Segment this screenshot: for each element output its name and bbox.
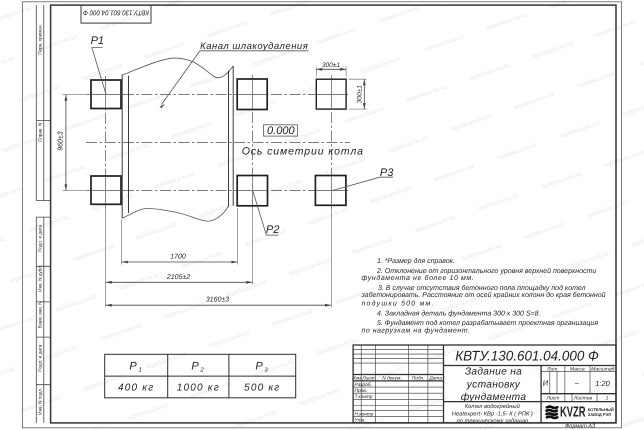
svg-text:Разраб.: Разраб. [355,382,372,388]
svg-text:1000 кг: 1000 кг [177,382,220,393]
svg-text:0.000: 0.000 [267,125,295,137]
svg-text:2: 2 [199,366,204,373]
svg-text:Инв. N подл.: Инв. N подл. [38,388,43,415]
svg-text:КВТУ.130.601.04.000 Ф: КВТУ.130.601.04.000 Ф [455,347,599,363]
svg-text:Подп. и дата: Подп. и дата [38,344,43,372]
svg-text:300±1: 300±1 [322,62,341,69]
svg-text:P1: P1 [91,35,104,47]
svg-text:Справ. N: Справ. N [38,123,43,142]
svg-text:Изм.: Изм. [352,375,362,381]
svg-text:Т.контр: Т.контр [355,394,373,400]
svg-text:КВТУ.130.601.04.000 Ф: КВТУ.130.601.04.000 Ф [83,9,149,16]
svg-text:P: P [255,360,263,372]
svg-text:500 кг: 500 кг [244,382,280,393]
svg-text:960±3: 960±3 [58,131,65,151]
svg-text:4. Закладная деталь фундамента: 4. Закладная деталь фундамента 300 x 300… [377,310,541,318]
svg-text:фундамента не более 10 мм.: фундамента не более 10 мм. [362,274,475,282]
svg-text:1. *Размер для справок.: 1. *Размер для справок. [377,257,455,265]
svg-text:300±1: 300±1 [356,85,363,104]
svg-text:Лист: Лист [546,396,560,402]
svg-text:Масштаб: Масштаб [591,366,615,372]
svg-text:Подп. и дата: Подп. и дата [38,225,43,253]
svg-text:N докум.: N докум. [382,375,401,381]
svg-text:400 кг: 400 кг [118,382,154,393]
svg-text:2105±2: 2105±2 [166,274,190,281]
svg-text:забетонировать. Расстояние от: забетонировать. Расстояние от осей крайн… [361,291,606,299]
svg-text:Пров.: Пров. [355,388,368,394]
svg-text:KVZR: KVZR [560,405,586,421]
svg-text:Лист: Лист [361,375,374,381]
svg-text:Heatexpert- КВр -1,5- К ( РПК: Heatexpert- КВр -1,5- К ( РПК ) [452,411,533,418]
svg-text:И: И [543,379,549,388]
svg-text:Дата: Дата [428,375,442,381]
svg-text:3160±3: 3160±3 [206,297,229,304]
svg-text:1: 1 [606,396,609,402]
svg-text:1700: 1700 [170,254,186,261]
svg-text:–: – [574,379,580,388]
svg-text:Ось симетрии котла: Ось симетрии котла [242,145,364,157]
svg-text:Подп.: Подп. [412,375,425,381]
svg-text:Н.контр: Н.контр [355,411,374,417]
svg-text:по нагрузкам на фундамент.: по нагрузкам на фундамент. [362,327,471,335]
svg-text:ЗАВОД РЭП: ЗАВОД РЭП [588,412,612,417]
svg-text:5. Фундамент под котел разраба: 5. Фундамент под котел разрабатывает про… [377,319,598,327]
svg-text:Задание на: Задание на [465,367,522,378]
svg-text:3. В случае отсутствия бетонно: 3. В случае отсутствия бетонного пола пл… [378,284,586,292]
svg-text:1:20: 1:20 [595,379,610,388]
svg-text:по техническому заданию: по техническому заданию [456,417,528,424]
svg-text:P2: P2 [266,224,279,236]
svg-text:Инв. N дубл.: Инв. N дубл. [38,265,43,292]
svg-text:Масса: Масса [570,366,585,372]
svg-text:P: P [129,360,137,372]
svg-text:Листов: Листов [573,396,593,402]
svg-text:Формат А3: Формат А3 [565,423,596,429]
svg-text:Взам. инв. N: Взам. инв. N [38,301,43,328]
svg-text:Перв. примен.: Перв. примен. [38,24,43,55]
svg-text:Канал шлакоудаления: Канал шлакоудаления [200,41,308,52]
svg-text:Котел водогрейный: Котел водогрейный [465,403,521,410]
svg-text:P: P [191,360,199,372]
svg-text:Утв.: Утв. [355,418,366,424]
svg-text:подушки 500 мм.: подушки 500 мм. [362,300,435,308]
svg-text:установку: установку [466,379,521,390]
svg-text:1: 1 [138,366,141,373]
svg-text:2. Отклонение от горизонтально: 2. Отклонение от горизонтального уровня … [376,267,596,275]
svg-text:фундамента: фундамента [461,392,527,403]
svg-text:Лит.: Лит. [546,366,559,372]
